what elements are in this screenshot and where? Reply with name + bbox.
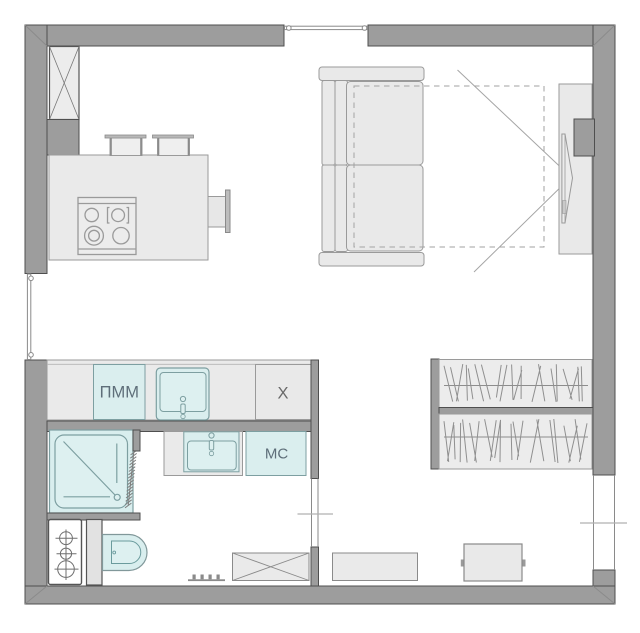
- svg-text:X: X: [277, 385, 288, 403]
- svg-text:ПММ: ПММ: [100, 384, 139, 402]
- svg-text:MC: MC: [265, 446, 288, 463]
